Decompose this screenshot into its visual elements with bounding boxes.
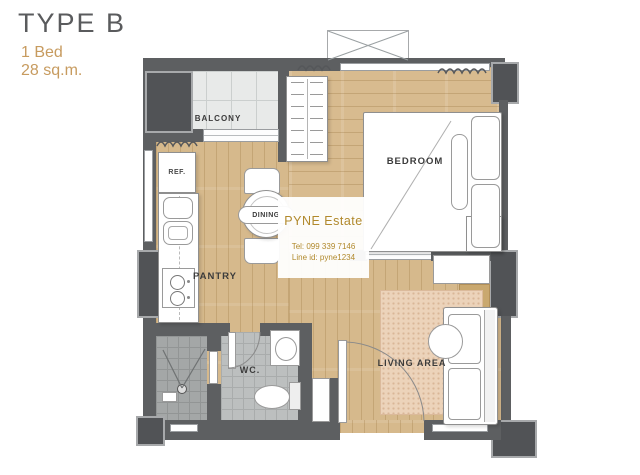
- shower-shelf: [162, 392, 177, 402]
- agency-phone: Tel: 099 339 7146: [292, 242, 356, 251]
- shower-drain: [177, 384, 187, 394]
- bedroom-label: BEDROOM: [365, 156, 465, 168]
- floor-shower-tiles: [156, 336, 207, 422]
- window-kitchen: [144, 150, 153, 242]
- wardrobe: [286, 76, 328, 162]
- entry-shoe-cabinet: [312, 378, 330, 422]
- wall-right-lower: [501, 316, 511, 428]
- wardrobe-hanger-rack-right: [310, 82, 323, 156]
- window-bedroom: [340, 63, 490, 71]
- bed-bolster: [451, 134, 468, 210]
- stove-burner-2: [170, 291, 185, 306]
- wardrobe-hanger-rack-left: [291, 82, 304, 156]
- agency-name: PYNE Estate: [284, 214, 362, 228]
- shower-door-leaf: [209, 351, 218, 384]
- entrance-door-leaf: [338, 340, 347, 423]
- wc-sink-basin: [275, 337, 297, 361]
- kitchen-sink-drainer: [163, 197, 193, 219]
- sink-basin-inner: [168, 226, 188, 240]
- plan-bed-count: 1 Bed: [21, 44, 63, 62]
- kitchen-sink-basin: [163, 221, 193, 245]
- bed-pillow-1: [471, 116, 500, 180]
- stove-knob-2: [187, 296, 190, 299]
- wardrobe-divider: [307, 79, 308, 159]
- floor-entry-threshold: [340, 420, 424, 433]
- wall-shower-wc-lower: [207, 384, 221, 422]
- wc-sink: [270, 330, 300, 366]
- living-area-label: LIVING AREA: [368, 357, 456, 369]
- column-southwest: [136, 416, 165, 446]
- dining-chair-bottom: [244, 238, 280, 264]
- refrigerator-label: REF.: [168, 169, 185, 176]
- window-bottom-living: [432, 424, 488, 432]
- toilet-bowl: [254, 385, 290, 409]
- wc-label: WC.: [228, 364, 272, 376]
- window-bottom: [170, 424, 198, 432]
- sofa-cushion-2: [448, 368, 481, 420]
- floorplan-canvas: TYPE B 1 Bed 28 sq.m. REF.: [0, 0, 640, 475]
- bed-pillow-2: [471, 184, 500, 248]
- plan-type-title: TYPE B: [18, 8, 126, 39]
- ac-condenser-unit: [327, 30, 409, 61]
- toilet-tank: [289, 382, 301, 410]
- balcony-sliding-door: [203, 129, 279, 142]
- coffee-table: [428, 324, 463, 359]
- refrigerator: REF.: [158, 152, 196, 193]
- column-northeast: [491, 62, 519, 104]
- agency-line-id: Line id: pyne1234: [292, 253, 355, 262]
- tv-console: [433, 255, 490, 284]
- sofa-backrest: [484, 310, 495, 422]
- wall-shower-wc-upper: [207, 325, 221, 351]
- plan-area-size: 28 sq.m.: [21, 62, 82, 80]
- balcony-label: BALCONY: [156, 113, 280, 125]
- pantry-label: PANTRY: [180, 271, 250, 283]
- dining-label: DINING: [252, 212, 280, 219]
- agency-watermark: PYNE Estate Tel: 099 339 7146 Line id: p…: [278, 197, 369, 278]
